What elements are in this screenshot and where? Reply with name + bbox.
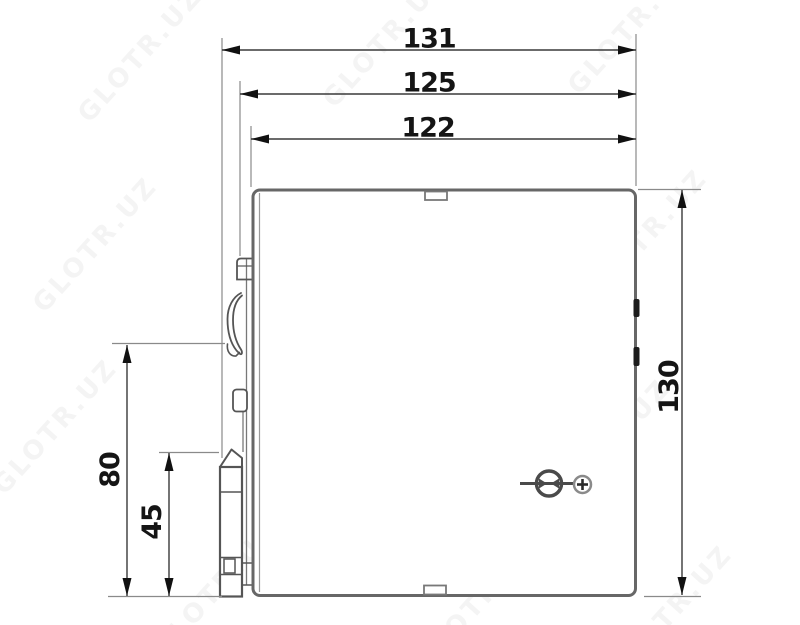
arrowhead-left xyxy=(222,46,240,55)
dim-label-130: 130 xyxy=(654,360,685,414)
dim-body-height: 130 xyxy=(654,190,687,595)
arrowhead-right xyxy=(618,90,636,99)
dim-total-depth: 131 xyxy=(222,24,636,55)
dim-rail-lower-height: 45 xyxy=(137,453,174,596)
arrowhead-up xyxy=(678,190,687,208)
dim-housing-depth: 125 xyxy=(240,68,636,99)
dimension-drawing-svg: 131 125 122 130 xyxy=(0,0,800,625)
dim-label-80: 80 xyxy=(95,452,126,488)
arrowhead-right xyxy=(618,46,636,55)
arrowhead-up xyxy=(123,345,132,363)
din-rail-clip xyxy=(220,259,253,597)
dim-label-131: 131 xyxy=(402,24,455,55)
arrowhead-left xyxy=(251,135,269,144)
device-body xyxy=(253,190,640,596)
arrowhead-up xyxy=(165,453,174,471)
arrowhead-down xyxy=(165,578,174,596)
arrowhead-down xyxy=(678,577,687,595)
middle-tab xyxy=(233,390,247,412)
arrowhead-down xyxy=(123,578,132,596)
right-edge-vent-mark xyxy=(634,299,640,317)
dim-label-125: 125 xyxy=(402,68,455,99)
housing-outline xyxy=(253,190,636,596)
dim-rail-upper-height: 80 xyxy=(95,345,132,596)
slider-chamfer xyxy=(220,450,242,468)
phillips-screw-icon xyxy=(574,476,591,493)
dim-body-depth: 122 xyxy=(251,113,636,144)
slider-block xyxy=(220,467,242,597)
upper-latch-tab xyxy=(237,259,252,280)
spring-hook xyxy=(228,293,243,354)
arrowhead-left xyxy=(240,90,258,99)
technical-drawing: GLOTR.UZ GLOTR.UZ GLOTR.UZ GLOTR.UZ GLOT… xyxy=(0,0,800,625)
dim-label-122: 122 xyxy=(401,113,454,144)
right-edge-vent-mark xyxy=(634,347,640,366)
dim-label-45: 45 xyxy=(137,504,168,540)
arrowhead-right xyxy=(618,135,636,144)
bottom-mounting-tab xyxy=(424,586,446,595)
top-mounting-tab xyxy=(425,192,447,201)
